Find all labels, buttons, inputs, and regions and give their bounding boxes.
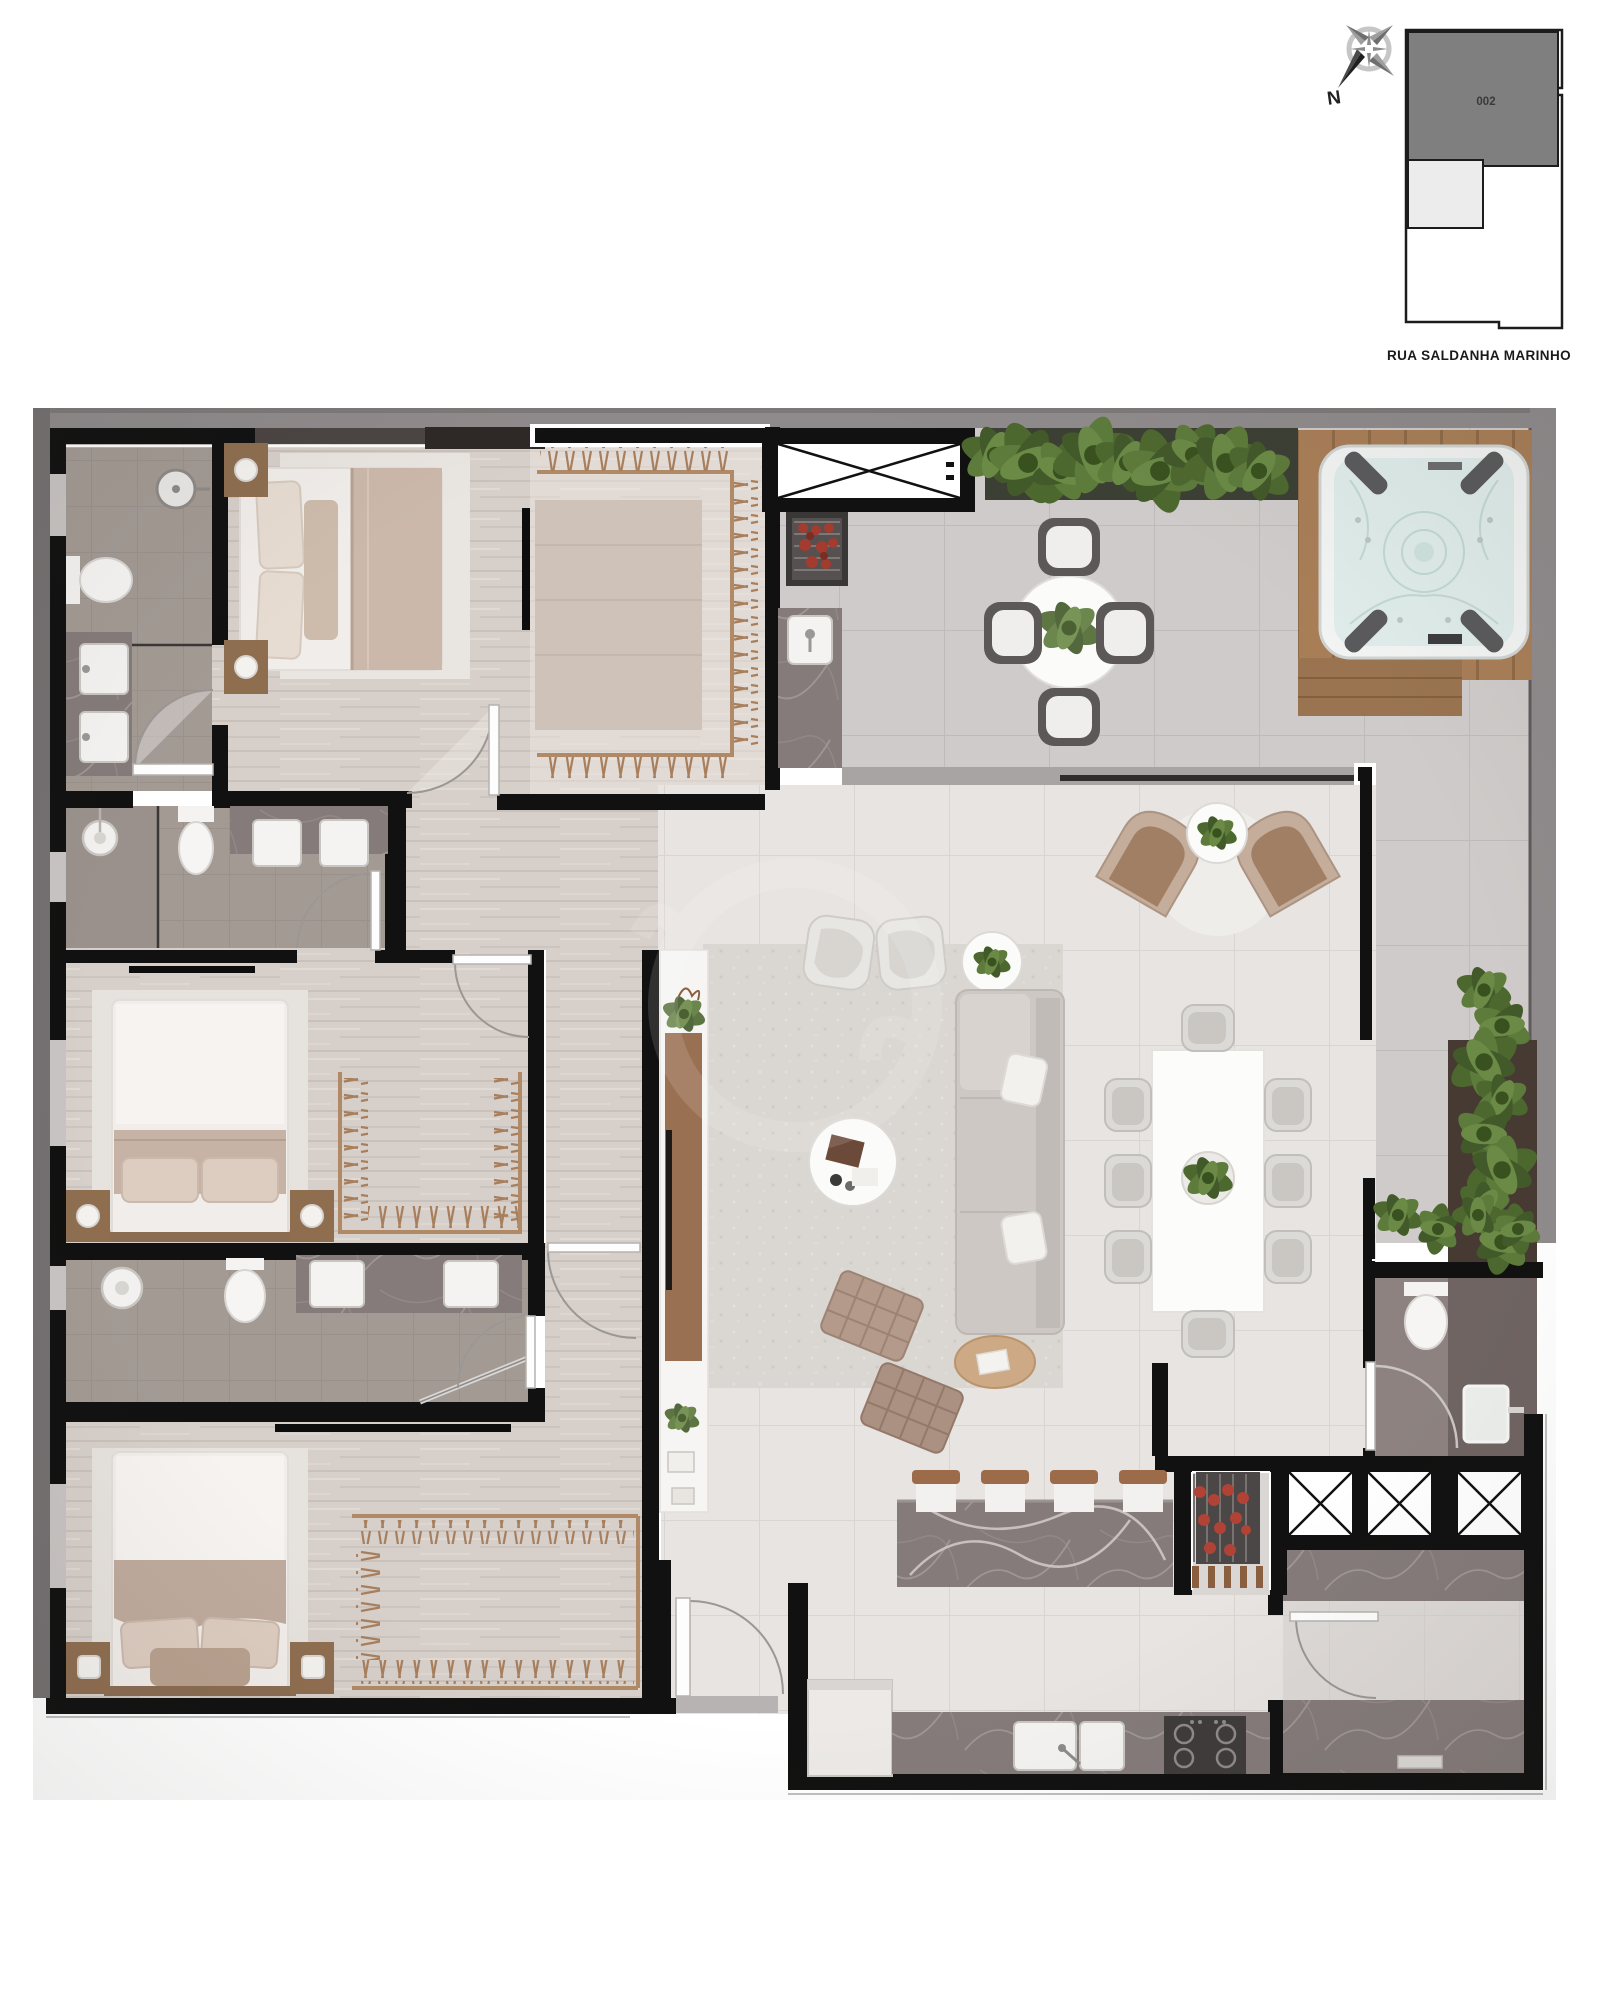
- svg-text:RUA SALDANHA MARINHO: RUA SALDANHA MARINHO: [1387, 348, 1571, 363]
- svg-text:N: N: [1326, 87, 1343, 110]
- svg-text:002: 002: [1476, 96, 1495, 108]
